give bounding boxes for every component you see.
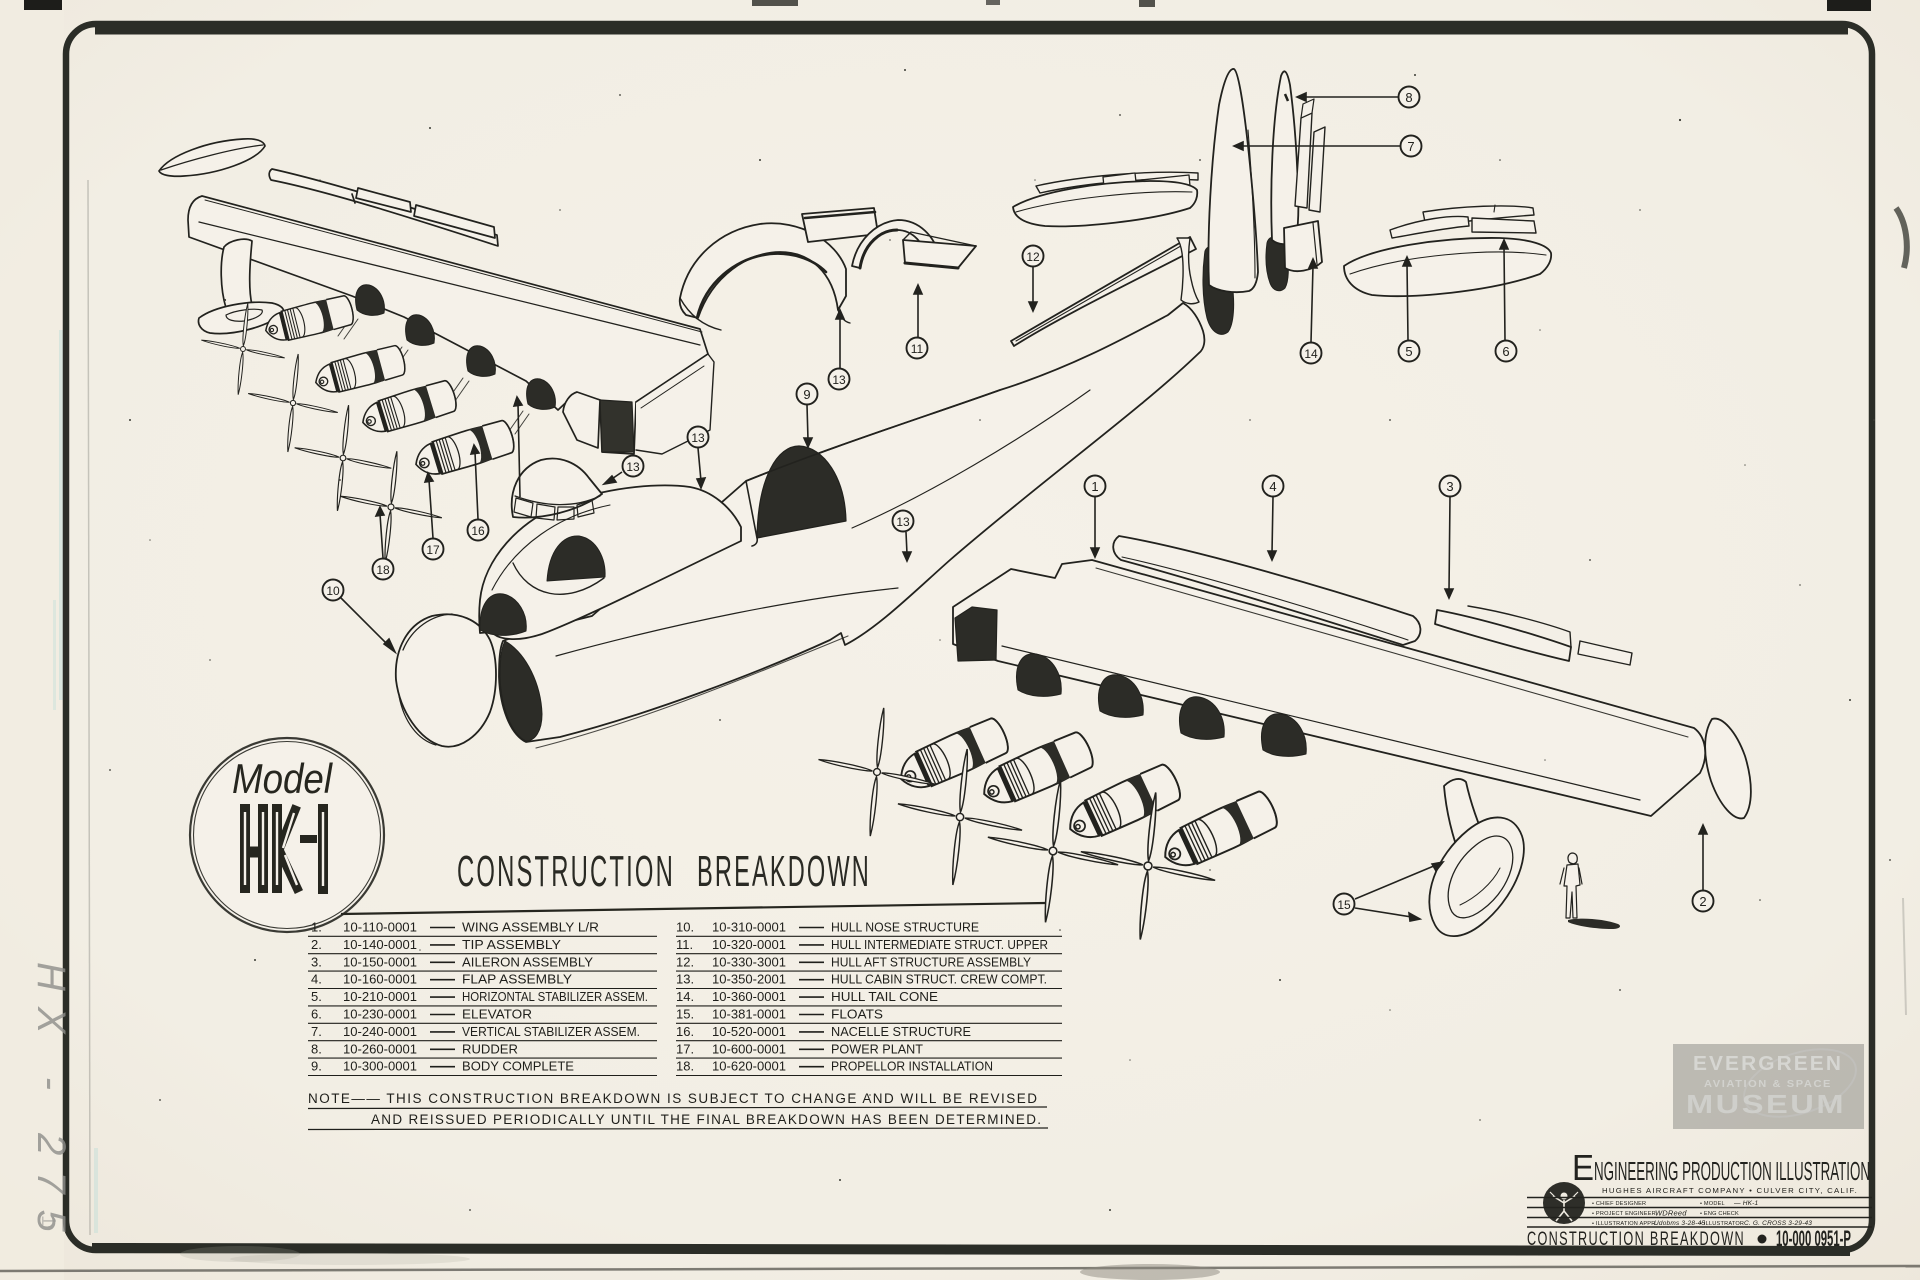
svg-text:• ENG CHECK: • ENG CHECK bbox=[1700, 1211, 1739, 1217]
svg-text:BREAKDOWN: BREAKDOWN bbox=[697, 847, 871, 896]
svg-text:ELEVATOR: ELEVATOR bbox=[462, 1007, 532, 1022]
svg-text:12.: 12. bbox=[676, 954, 694, 969]
svg-text:10.: 10. bbox=[676, 920, 694, 935]
svg-text:AND REISSUED PERIODICALLY U: AND REISSUED PERIODICALLY UNTIL THE FINA… bbox=[371, 1112, 1043, 1127]
svg-text:HULL AFT STRUCTURE ASSEMBLY: HULL AFT STRUCTURE ASSEMBLY bbox=[831, 954, 1031, 969]
svg-text:• ILLUSTRATOR: • ILLUSTRATOR bbox=[1700, 1221, 1744, 1227]
svg-text:• MODEL: • MODEL bbox=[1700, 1201, 1725, 1207]
svg-text:5.: 5. bbox=[311, 989, 322, 1004]
svg-text:FLOATS: FLOATS bbox=[831, 1007, 883, 1022]
svg-text:8.: 8. bbox=[311, 1041, 322, 1056]
svg-text:11: 11 bbox=[911, 342, 924, 356]
svg-text:10-210-0001: 10-210-0001 bbox=[343, 989, 417, 1004]
svg-text:1: 1 bbox=[37, 1215, 59, 1226]
svg-text:18.: 18. bbox=[676, 1059, 694, 1074]
svg-text:16.: 16. bbox=[676, 1024, 694, 1039]
svg-text:RUDDER: RUDDER bbox=[462, 1041, 518, 1056]
svg-text:16: 16 bbox=[471, 524, 485, 538]
svg-text:HULL NOSE STRUCTURE: HULL NOSE STRUCTURE bbox=[831, 920, 979, 935]
svg-text:WDReed: WDReed bbox=[1655, 1209, 1687, 1218]
svg-text:10-160-0001: 10-160-0001 bbox=[343, 972, 417, 987]
svg-text:HORIZONTAL STABILIZER ASSEM.: HORIZONTAL STABILIZER ASSEM. bbox=[462, 989, 648, 1004]
svg-text:18: 18 bbox=[376, 563, 390, 577]
svg-text:Model: Model bbox=[232, 755, 333, 802]
svg-text:10-150-0001: 10-150-0001 bbox=[343, 954, 417, 969]
svg-text:BODY COMPLETE: BODY COMPLETE bbox=[462, 1059, 574, 1074]
svg-text:3.: 3. bbox=[311, 954, 322, 969]
svg-text:6: 6 bbox=[1502, 344, 1509, 359]
svg-text:3: 3 bbox=[1446, 479, 1453, 494]
svg-text:HX - 275: HX - 275 bbox=[29, 962, 73, 1248]
svg-text:VERTICAL STABILIZER ASSEM.: VERTICAL STABILIZER ASSEM. bbox=[462, 1024, 640, 1039]
svg-text:E: E bbox=[1572, 1147, 1594, 1188]
svg-text:PROPELLOR INSTALLATION: PROPELLOR INSTALLATION bbox=[831, 1059, 993, 1074]
svg-text:13: 13 bbox=[691, 431, 705, 445]
svg-text:9.: 9. bbox=[311, 1059, 322, 1074]
svg-text:5: 5 bbox=[1405, 344, 1412, 359]
svg-text:WING ASSEMBLY L/R: WING ASSEMBLY L/R bbox=[462, 920, 599, 935]
svg-text:CONSTRUCTION BREAKDOWN: CONSTRUCTION BREAKDOWN bbox=[1527, 1229, 1745, 1250]
svg-text:17: 17 bbox=[426, 543, 440, 557]
svg-text:HUGHES AIRCRAFT COMPANY •: HUGHES AIRCRAFT COMPANY • CULVER CITY, C… bbox=[1602, 1186, 1858, 1195]
svg-text:10-230-0001: 10-230-0001 bbox=[343, 1007, 417, 1022]
svg-text:10-000 0951-P: 10-000 0951-P bbox=[1776, 1226, 1851, 1251]
svg-text:10-620-0001: 10-620-0001 bbox=[712, 1059, 786, 1074]
svg-text:10-600-0001: 10-600-0001 bbox=[712, 1041, 786, 1056]
svg-text:6.: 6. bbox=[311, 1007, 322, 1022]
svg-text:HULL TAIL CONE: HULL TAIL CONE bbox=[831, 989, 938, 1004]
svg-text:4.: 4. bbox=[311, 972, 322, 987]
svg-text:FLAP ASSEMBLY: FLAP ASSEMBLY bbox=[462, 972, 572, 987]
svg-text:• CHIEF DESIGNER: • CHIEF DESIGNER bbox=[1592, 1201, 1646, 1207]
svg-text:HULL CABIN STRUCT. CREW COMPT.: HULL CABIN STRUCT. CREW COMPT. bbox=[831, 972, 1047, 987]
svg-text:17.: 17. bbox=[676, 1041, 694, 1056]
svg-text:10-330-3001: 10-330-3001 bbox=[712, 954, 786, 969]
svg-text:8: 8 bbox=[1405, 90, 1412, 105]
svg-text:13: 13 bbox=[626, 460, 640, 474]
svg-text:15.: 15. bbox=[676, 1007, 694, 1022]
svg-text:10: 10 bbox=[326, 584, 340, 598]
svg-text:11.: 11. bbox=[676, 937, 693, 952]
svg-text:10-240-0001: 10-240-0001 bbox=[343, 1024, 417, 1039]
svg-text:10-300-0001: 10-300-0001 bbox=[343, 1059, 417, 1074]
svg-text:13: 13 bbox=[832, 373, 846, 387]
svg-text:— HK-1: — HK-1 bbox=[1733, 1200, 1759, 1207]
svg-text:• ILLUSTRATION APPR.: • ILLUSTRATION APPR. bbox=[1592, 1221, 1657, 1227]
svg-text:14.: 14. bbox=[676, 989, 694, 1004]
svg-text:10-520-0001: 10-520-0001 bbox=[712, 1024, 786, 1039]
svg-text:13.: 13. bbox=[676, 972, 694, 987]
svg-text:10-350-2001: 10-350-2001 bbox=[712, 972, 786, 987]
svg-text:15: 15 bbox=[1337, 898, 1351, 912]
svg-text:10-310-0001: 10-310-0001 bbox=[712, 920, 786, 935]
svg-text:CONSTRUCTION: CONSTRUCTION bbox=[457, 847, 675, 896]
svg-text:1: 1 bbox=[1091, 479, 1098, 494]
svg-text:NOTE—— THIS CONSTRUCTION BRE: NOTE—— THIS CONSTRUCTION BREAKDOWN IS SU… bbox=[308, 1091, 1039, 1106]
svg-text:1.: 1. bbox=[311, 920, 322, 935]
svg-text:7: 7 bbox=[1407, 139, 1414, 154]
svg-text:MUSEUM: MUSEUM bbox=[1686, 1089, 1846, 1119]
svg-text:10-110-0001: 10-110-0001 bbox=[343, 920, 417, 935]
svg-text:2: 2 bbox=[1699, 894, 1706, 909]
svg-text:TIP ASSEMBLY: TIP ASSEMBLY bbox=[462, 937, 561, 952]
svg-text:NGINEERING PRODUCTION ILLUSTRA: NGINEERING PRODUCTION ILLUSTRATION bbox=[1594, 1156, 1870, 1186]
svg-text:14: 14 bbox=[1304, 347, 1318, 361]
svg-text:10-381-0001: 10-381-0001 bbox=[712, 1007, 786, 1022]
svg-text:2.: 2. bbox=[311, 937, 322, 952]
svg-text:EVERGREEN: EVERGREEN bbox=[1693, 1053, 1843, 1075]
svg-text:10-140-0001: 10-140-0001 bbox=[343, 937, 417, 952]
svg-text:9: 9 bbox=[803, 387, 810, 402]
svg-text:12: 12 bbox=[1026, 250, 1040, 264]
svg-text:10-360-0001: 10-360-0001 bbox=[712, 989, 786, 1004]
svg-text:NACELLE STRUCTURE: NACELLE STRUCTURE bbox=[831, 1024, 971, 1039]
svg-text:10-260-0001: 10-260-0001 bbox=[343, 1041, 417, 1056]
svg-text:13: 13 bbox=[896, 515, 910, 529]
svg-text:POWER PLANT: POWER PLANT bbox=[831, 1041, 923, 1056]
svg-text:7.: 7. bbox=[311, 1024, 322, 1039]
svg-text:4: 4 bbox=[1269, 479, 1276, 494]
svg-text:• PROJECT ENGINEER: • PROJECT ENGINEER bbox=[1592, 1211, 1656, 1217]
svg-text:Udobms 3-28-45: Udobms 3-28-45 bbox=[1654, 1220, 1705, 1227]
svg-text:AILERON ASSEMBLY: AILERON ASSEMBLY bbox=[462, 954, 593, 969]
svg-text:10-320-0001: 10-320-0001 bbox=[712, 937, 786, 952]
svg-text:HULL INTERMEDIATE STRUCT. UPPE: HULL INTERMEDIATE STRUCT. UPPER bbox=[831, 937, 1048, 952]
